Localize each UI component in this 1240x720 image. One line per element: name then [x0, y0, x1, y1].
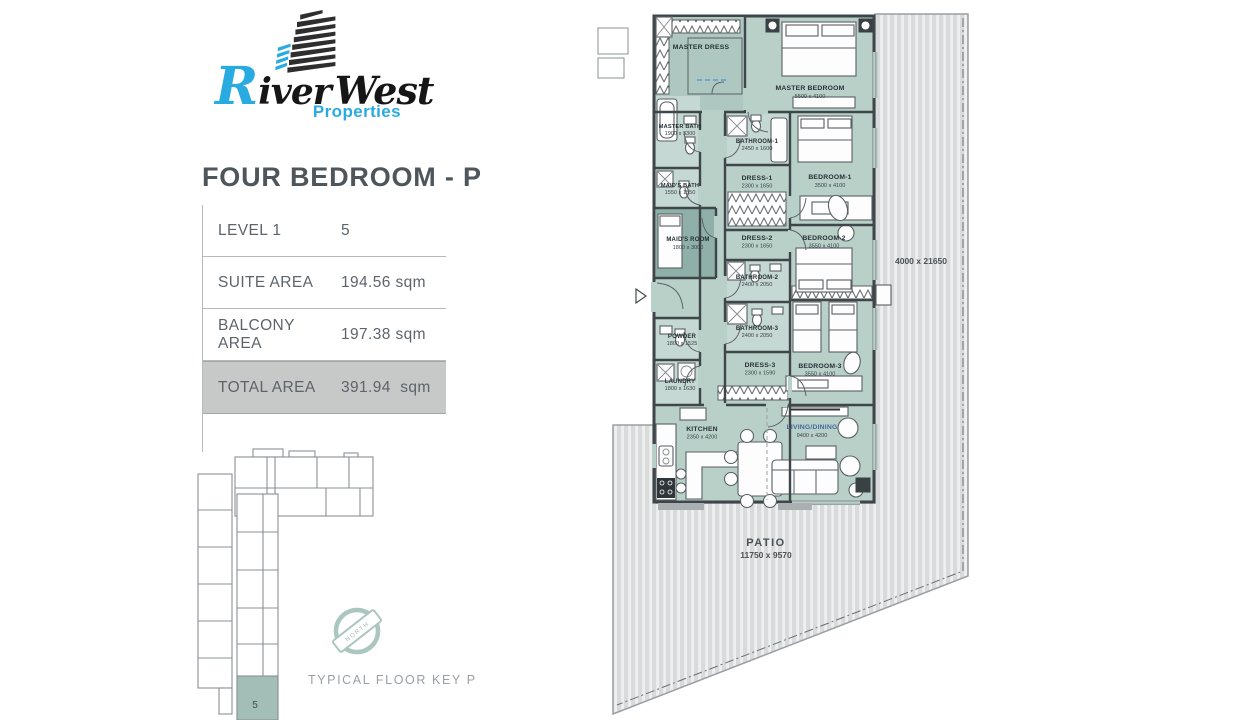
floor-plan: MASTER DRESS MASTER BEDROOM 5500 x 4100 …: [595, 5, 995, 720]
room-dims: 2300 x 1650: [742, 244, 773, 250]
table-row-balcony-area: BALCONY AREA 197.38 sqm: [203, 309, 446, 361]
room-label: BATHROOM-1: [736, 139, 779, 145]
room-label: MAID'S BATH: [661, 183, 699, 189]
row-label: BALCONY AREA: [203, 317, 341, 353]
room-label: MASTER BATH: [659, 124, 702, 130]
key-plan-unit-number: 5: [252, 700, 258, 711]
room-label: LIVING/DINING: [787, 424, 838, 431]
room-label: MASTER BEDROOM: [776, 85, 845, 92]
room-label: DRESS-3: [745, 362, 776, 369]
brochure-page: { "brand": { "initial": "R", "word1": "i…: [0, 0, 1240, 720]
row-label: LEVEL 1: [203, 222, 341, 240]
area-info-table: LEVEL 1 5 SUITE AREA 194.56 sqm BALCONY …: [202, 205, 446, 452]
room-label: BEDROOM-2: [802, 235, 845, 242]
service-shafts: [598, 28, 628, 78]
brand-tagline: Properties: [215, 102, 401, 122]
room-label: MASTER DRESS: [673, 44, 730, 51]
key-plan-caption: TYPICAL FLOOR KEY PLAN: [308, 673, 475, 687]
row-value: 197.38 sqm: [341, 326, 446, 344]
patio-label: PATIO: [746, 537, 785, 549]
room-dims: 3500 x 4100: [815, 183, 846, 189]
room-dims: 3550 x 4100: [809, 244, 840, 250]
row-label: TOTAL AREA: [203, 379, 341, 397]
key-plan-highlighted-unit: [237, 676, 278, 720]
patio-dims: 11750 x 9570: [740, 550, 792, 560]
table-row-total-area: TOTAL AREA 391.94 sqm: [203, 361, 446, 414]
room-dims: 1800 x 1525: [667, 341, 698, 347]
row-value: 391.94 sqm: [341, 379, 446, 397]
room-label: MAID'S ROOM: [666, 237, 709, 243]
room-dims: 2400 x 2050: [742, 333, 773, 339]
room-dims: 2450 x 1600: [742, 146, 773, 152]
room-dims: 1800 x 1630: [665, 386, 696, 392]
room-label: BATHROOM-2: [736, 275, 779, 281]
entrance-arrow-icon: [636, 289, 646, 303]
row-value: 5: [341, 222, 446, 240]
room-dims: 1800 x 3000: [673, 245, 704, 251]
table-row-level: LEVEL 1 5: [203, 205, 446, 257]
room-label: LAUNDRY: [665, 379, 696, 385]
compass-icon: NORTH: [332, 609, 382, 652]
room-dims: 2300 x 1590: [745, 371, 776, 377]
table-row-suite-area: SUITE AREA 194.56 sqm: [203, 257, 446, 309]
room-dims: 9400 x 4200: [797, 433, 828, 439]
row-label: SUITE AREA: [203, 274, 341, 292]
room-label: DRESS-1: [742, 175, 773, 182]
room-dims: 3550 x 4100: [805, 372, 836, 378]
row-value: 194.56 sqm: [341, 274, 446, 292]
room-dims: 1900 x 3300: [665, 131, 696, 137]
room-dims: 2350 x 4200: [687, 435, 718, 441]
room-label: POWDER: [668, 334, 697, 340]
room-label: DRESS-2: [742, 235, 773, 242]
page-title: FOUR BEDROOM - P: [202, 162, 482, 193]
room-label: KITCHEN: [686, 426, 718, 433]
room-dims: 1550 x 1550: [665, 190, 696, 196]
room-label: BATHROOM-3: [736, 326, 779, 332]
key-plan: 5 NORTH TYPICAL FLOOR KEY PLAN: [195, 444, 475, 720]
room-dims: 2400 x 2050: [742, 282, 773, 288]
room-label: BEDROOM-3: [798, 363, 841, 370]
room-label: BEDROOM-1: [808, 174, 851, 181]
room-dims: 5500 x 4100: [795, 94, 826, 100]
balcony-dims: 4000 x 21650: [895, 256, 947, 266]
room-dims: 2300 x 1650: [742, 184, 773, 190]
